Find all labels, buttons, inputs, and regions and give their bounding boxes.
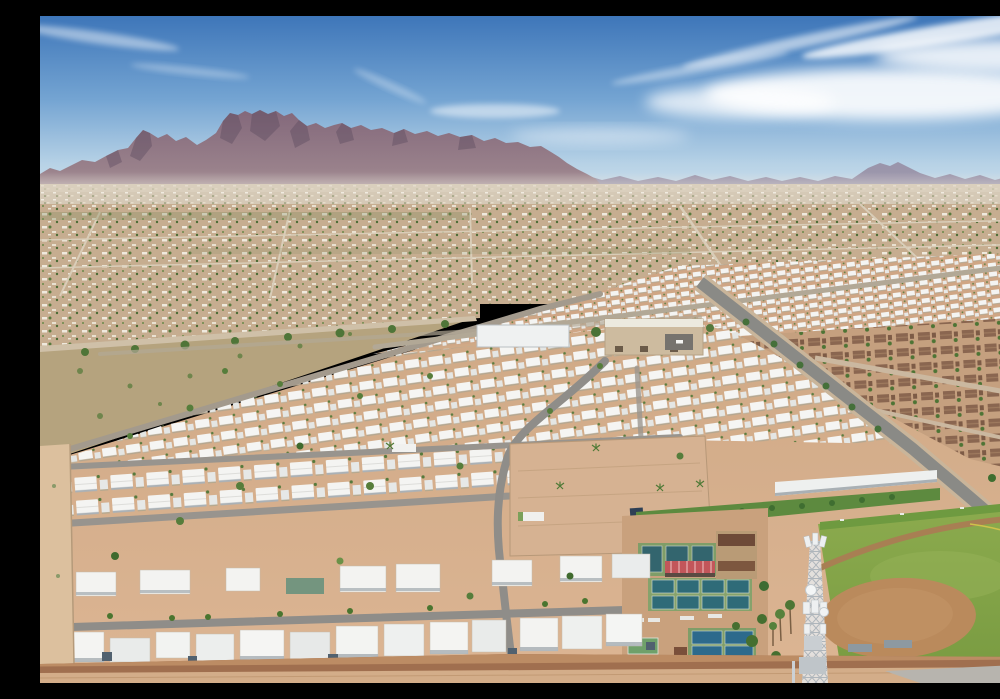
- brown-shed: [674, 647, 687, 656]
- microwave-dish: [806, 585, 817, 596]
- left-perimeter-strip: [40, 444, 74, 668]
- rv-motorhome-2: [392, 444, 416, 452]
- tower-equipment: [804, 636, 822, 650]
- scene-canvas: Aerial photo: rows of white-roofed mobil…: [40, 16, 1000, 683]
- dugout-roof: [848, 644, 872, 652]
- parked-car: [676, 340, 683, 344]
- dugout-roof-2: [884, 640, 912, 648]
- teal-mobile-home: [286, 578, 324, 594]
- microwave-dish-2: [820, 608, 829, 617]
- red-shade-canopy: [665, 561, 715, 575]
- city-haze: [40, 184, 1000, 192]
- community-hall-roof: [477, 325, 569, 347]
- aerial-photo: Aerial photo: rows of white-roofed mobil…: [40, 16, 1000, 683]
